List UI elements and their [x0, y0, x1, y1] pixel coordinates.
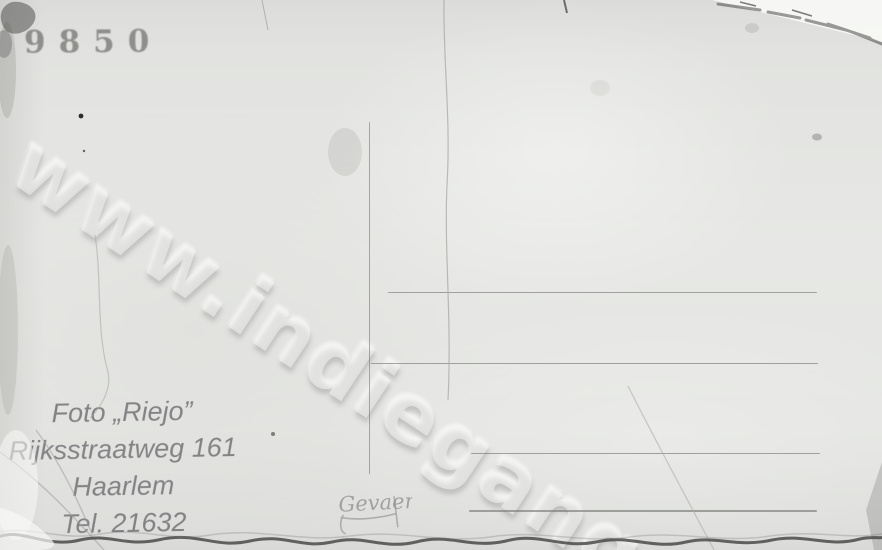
stain-top-right — [745, 23, 759, 33]
stain-center-left — [328, 128, 362, 176]
gevaert-text: Gevaert — [338, 488, 414, 516]
studio-name: Foto „Riejo” — [3, 392, 242, 433]
gevaert-brand-mark: Gevaert — [332, 486, 415, 540]
stain-top-center — [590, 80, 610, 96]
scuff-marks-top-right — [740, 2, 812, 16]
fold-crease-vertical — [444, 0, 449, 400]
crease-bottom-right — [628, 386, 714, 550]
fleck-right — [812, 134, 822, 141]
smudge-left-top — [0, 22, 16, 118]
address-line-1 — [388, 292, 817, 293]
crease-left-edge — [90, 235, 109, 418]
ink-speck-1 — [79, 114, 84, 119]
postcard-back: 9850 www.indiegangers.nl Foto „Riejo” Ri… — [0, 0, 882, 550]
ink-blotch-top-left-2 — [0, 30, 12, 58]
address-line-4 — [469, 510, 817, 512]
divider-line — [369, 122, 370, 474]
address-line-3 — [471, 453, 820, 454]
ink-speck-2 — [83, 150, 85, 152]
ink-speck-3 — [271, 432, 275, 436]
studio-phone: Tel. 21632 — [5, 503, 244, 544]
scan-gap-top-right — [712, 0, 882, 42]
mark-top-center — [564, 0, 567, 13]
address-line-2 — [371, 363, 818, 364]
stamp-number: 9850 — [24, 23, 163, 60]
studio-street: Rijksstraatweg 161 — [3, 429, 242, 470]
studio-city: Haarlem — [4, 466, 243, 507]
shadow-bottom-right-edge — [866, 462, 882, 550]
crease-top-left — [262, 0, 268, 30]
smudge-left-mid — [0, 245, 18, 415]
studio-imprint: Foto „Riejo” Rijksstraatweg 161 Haarlem … — [3, 392, 244, 544]
scuffed-edge-top-right — [718, 4, 882, 44]
